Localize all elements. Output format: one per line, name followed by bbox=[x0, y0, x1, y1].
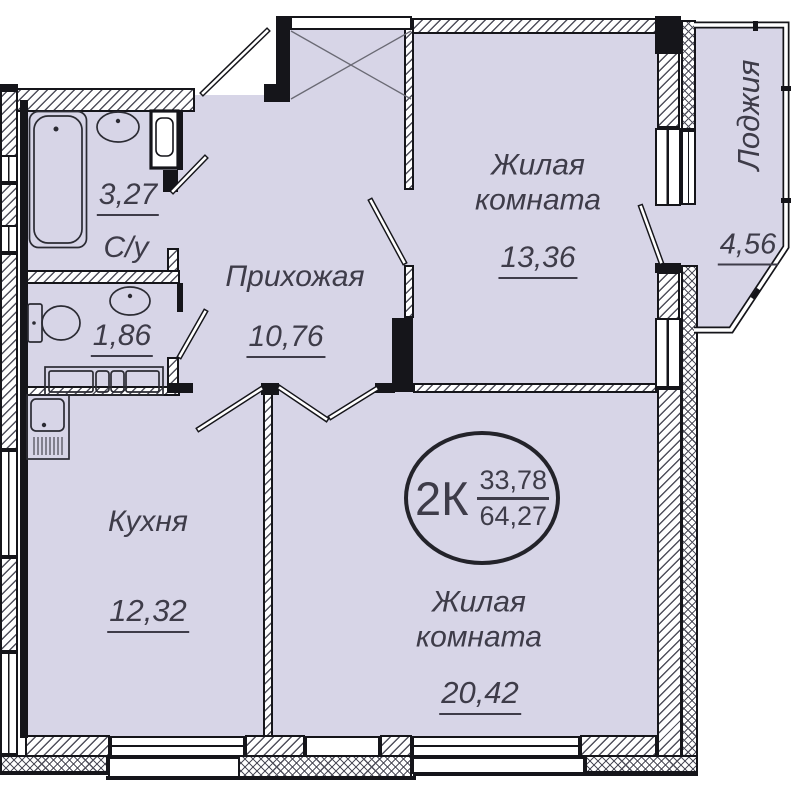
wall-left-outer-3 bbox=[0, 253, 18, 450]
wall-left-outer-1 bbox=[0, 86, 18, 157]
toilet-area-label: 1,86 bbox=[91, 319, 153, 357]
loggia-area-value: 4,56 bbox=[718, 229, 778, 266]
sill-kitchen bbox=[108, 757, 240, 778]
window-left-2 bbox=[0, 225, 18, 253]
window-living1-right bbox=[655, 318, 681, 388]
wall-left-outer-2 bbox=[0, 183, 18, 227]
wall-living1-bottom bbox=[413, 383, 657, 393]
loggia-area-label: 4,56 bbox=[718, 229, 778, 266]
wall-corner-pier bbox=[392, 318, 413, 392]
bathroom-area-value: 3,27 bbox=[97, 178, 159, 216]
wall-bath-right-upper bbox=[177, 112, 183, 170]
outline-bottom-4 bbox=[585, 771, 698, 776]
floor-kitchen bbox=[28, 390, 265, 738]
living2-name-label: Жилая комната bbox=[379, 585, 579, 656]
wall-outer-layer-upper bbox=[681, 20, 696, 130]
wall-toilet-kitchen-divider bbox=[26, 386, 180, 396]
living1-area-label: 13,36 bbox=[498, 241, 577, 279]
apartment-badge: 2К 33,78 64,27 bbox=[404, 431, 560, 565]
wall-bottom-pier-4 bbox=[580, 735, 657, 757]
apartment-total-area: 64,27 bbox=[479, 500, 547, 530]
floor-plan: 3,27 С/у 1,86 Прихожая 10,76 Жилая комна… bbox=[0, 0, 800, 800]
kitchen-name-label: Кухня bbox=[108, 505, 188, 539]
wall-hall-bottom-right bbox=[375, 383, 395, 393]
outline-bottom-3 bbox=[413, 772, 587, 776]
window-loggia-outer-layer bbox=[681, 130, 696, 205]
wall-divider-cap bbox=[261, 383, 279, 395]
hallway-name-label: Прихожая bbox=[225, 260, 364, 294]
wall-bath-toilet-divider bbox=[26, 270, 180, 284]
wall-loggia-divider-mid-cap bbox=[655, 263, 681, 273]
toilet-area-value: 1,86 bbox=[91, 319, 153, 357]
wall-bath-door-frame bbox=[163, 170, 178, 192]
wall-right-outer-inner-layer bbox=[657, 388, 682, 772]
wall-entrance-top bbox=[10, 88, 195, 112]
living2-area-value: 20,42 bbox=[439, 675, 521, 715]
wall-loggia-parapet-lower bbox=[657, 272, 680, 320]
shaft-top-band bbox=[290, 16, 412, 30]
hallway-area-value: 10,76 bbox=[246, 320, 325, 358]
wall-left-inner-line bbox=[20, 100, 28, 738]
window-left-1 bbox=[0, 155, 18, 183]
wall-bottom-pier-3 bbox=[380, 735, 412, 757]
wall-bottom-pier-1 bbox=[25, 735, 110, 757]
living1-name-label: Жилая комната bbox=[438, 148, 638, 219]
wall-hall-bottom-left bbox=[167, 383, 193, 393]
outline-bottom-1 bbox=[0, 771, 110, 775]
wall-kitchen-living2-divider bbox=[263, 393, 273, 738]
loggia-name-label: Лоджия bbox=[731, 60, 767, 171]
window-kitchen-bottom bbox=[110, 736, 245, 757]
kitchen-area-value: 12,32 bbox=[107, 593, 189, 633]
wall-top-left-cap bbox=[0, 84, 18, 92]
niche-bottom bbox=[305, 736, 380, 757]
wall-hall-living1-upper bbox=[404, 28, 414, 190]
window-living1-loggia bbox=[655, 128, 681, 206]
wall-toilet-right-upper bbox=[177, 283, 183, 312]
kitchen-area-label: 12,32 bbox=[107, 593, 189, 633]
wall-left-outer-4 bbox=[0, 557, 18, 652]
living1-area-value: 13,36 bbox=[498, 241, 577, 279]
bathroom-name-label: С/у bbox=[104, 231, 149, 265]
wall-bottom-pier-2 bbox=[245, 735, 305, 757]
wall-loggia-divider-top-pier bbox=[655, 16, 681, 54]
floor-balcony-doorway bbox=[650, 205, 695, 265]
apartment-type: 2К bbox=[415, 471, 469, 526]
window-living2-bottom bbox=[412, 736, 580, 757]
bathroom-area-label: 3,27 bbox=[97, 178, 159, 216]
window-left-kitchen bbox=[0, 652, 18, 755]
window-left-3 bbox=[0, 450, 18, 557]
wall-loggia-parapet-upper bbox=[657, 52, 680, 128]
hallway-area-label: 10,76 bbox=[246, 320, 325, 358]
apartment-areas: 33,78 64,27 bbox=[477, 466, 549, 530]
wall-outer-layer-lower bbox=[681, 265, 698, 772]
living2-area-label: 20,42 bbox=[439, 675, 521, 715]
wall-hall-living1-stub bbox=[404, 265, 414, 318]
floor-shaft bbox=[290, 28, 412, 102]
wall-living1-top bbox=[412, 18, 658, 34]
apartment-living-area: 33,78 bbox=[477, 466, 549, 499]
outline-bottom-2 bbox=[106, 776, 416, 780]
wall-shaft-foot bbox=[264, 84, 290, 102]
